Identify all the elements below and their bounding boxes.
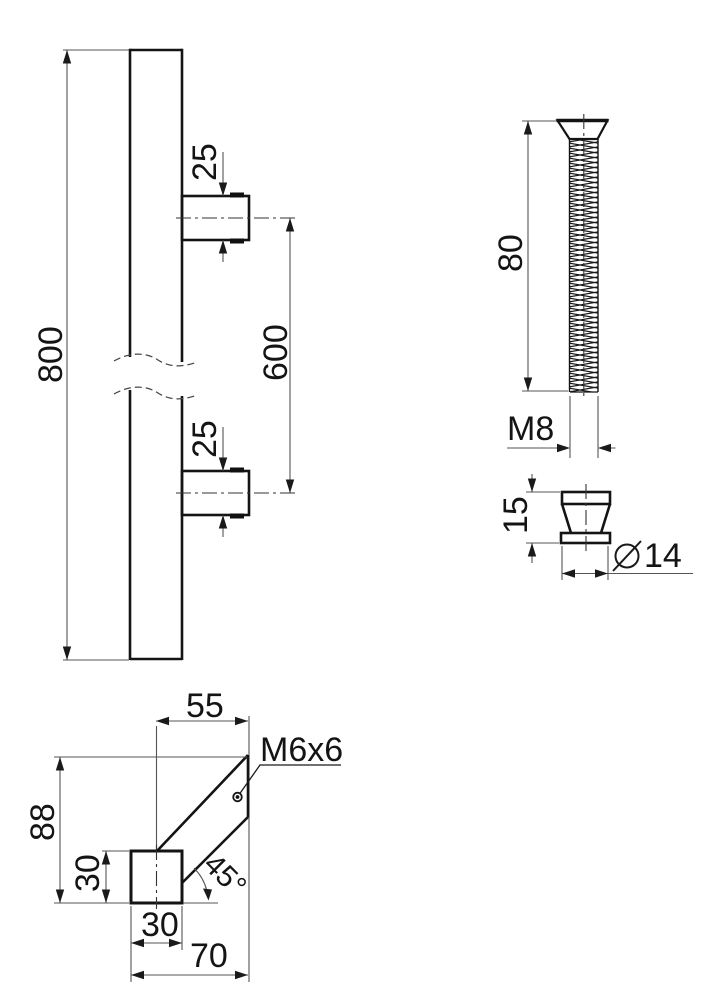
dimension-600: 600 xyxy=(257,218,295,493)
dimension-m8: M8 xyxy=(507,396,616,458)
dim-label-70: 70 xyxy=(190,937,228,975)
dimension-15: 15 xyxy=(497,474,560,563)
dimension-45-degrees: 45° xyxy=(183,848,252,903)
dim-label-15: 15 xyxy=(497,496,535,534)
dim-label-m6x6: M6x6 xyxy=(260,731,343,769)
dimension-800: 800 xyxy=(32,50,129,660)
screw-side-view: 80 M8 xyxy=(492,114,616,458)
upper-stud-gasket-top xyxy=(230,193,244,198)
dim-label-25-upper: 25 xyxy=(186,143,224,181)
dim-label-30-horizontal: 30 xyxy=(141,906,179,944)
technical-drawing-sheet: 800 600 25 25 xyxy=(0,0,707,1000)
dim-label-80: 80 xyxy=(492,234,530,272)
dim-label-45: 45° xyxy=(197,848,252,903)
dimension-30-horizontal: 30 xyxy=(131,906,182,982)
set-screw-leader-line xyxy=(240,765,342,794)
dim-label-25-lower: 25 xyxy=(186,420,224,458)
lower-stud-gasket-top xyxy=(230,468,244,473)
dim-label-55: 55 xyxy=(186,687,224,725)
bracket-detail-view: M6x6 55 88 30 45° xyxy=(24,687,343,982)
dim-label-800: 800 xyxy=(32,326,70,383)
dimension-80: 80 xyxy=(492,121,568,391)
dim-label-30-vertical: 30 xyxy=(69,854,107,892)
dimension-30-vertical: 30 xyxy=(69,851,129,903)
break-line-upper xyxy=(114,354,197,366)
dim-label-600: 600 xyxy=(257,324,295,381)
cap-side-view: 15 14 xyxy=(497,474,693,580)
dimension-55: 55 xyxy=(156,687,248,725)
lower-stud-gasket-bottom xyxy=(230,514,244,519)
upper-stud-gasket-bottom xyxy=(230,239,244,244)
set-screw-hole-center xyxy=(236,795,240,799)
dim-label-m8: M8 xyxy=(507,410,554,448)
break-line-lower xyxy=(114,387,197,399)
drawing-canvas: 800 600 25 25 xyxy=(0,0,707,1000)
dim-label-88: 88 xyxy=(24,803,62,841)
handle-front-view: 800 600 25 25 xyxy=(32,49,296,660)
screw-countersunk-head xyxy=(558,121,608,140)
dim-label-14: 14 xyxy=(644,537,682,575)
